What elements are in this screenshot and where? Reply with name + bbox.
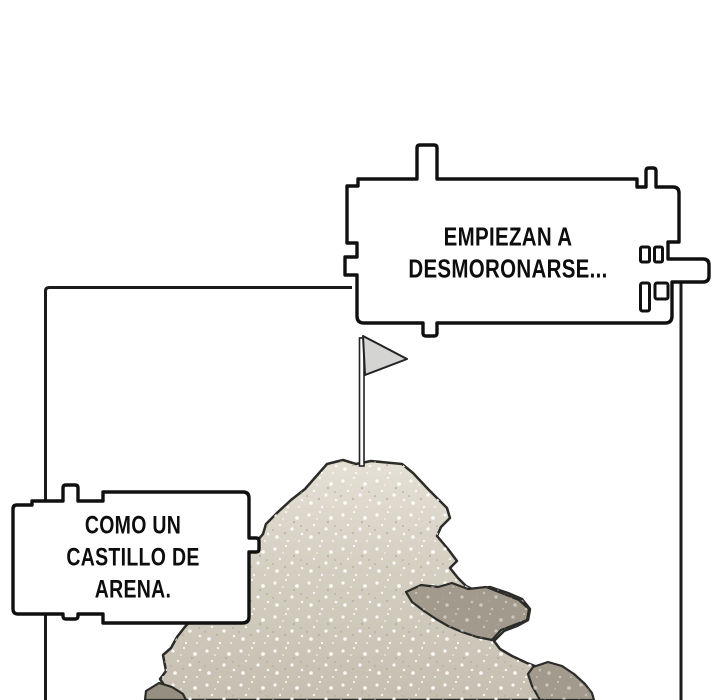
speech-text-left: COMO UN CASTILLO DE ARENA. [16,479,250,638]
crumble-chunk-bottom-right-texture [528,662,594,700]
comic-panel: EMPIEZAN A DESMORONARSE... COMO UN CASTI… [0,0,720,700]
flag-icon [360,336,408,466]
speech-text-top: EMPIEZAN A DESMORONARSE... [358,162,658,344]
